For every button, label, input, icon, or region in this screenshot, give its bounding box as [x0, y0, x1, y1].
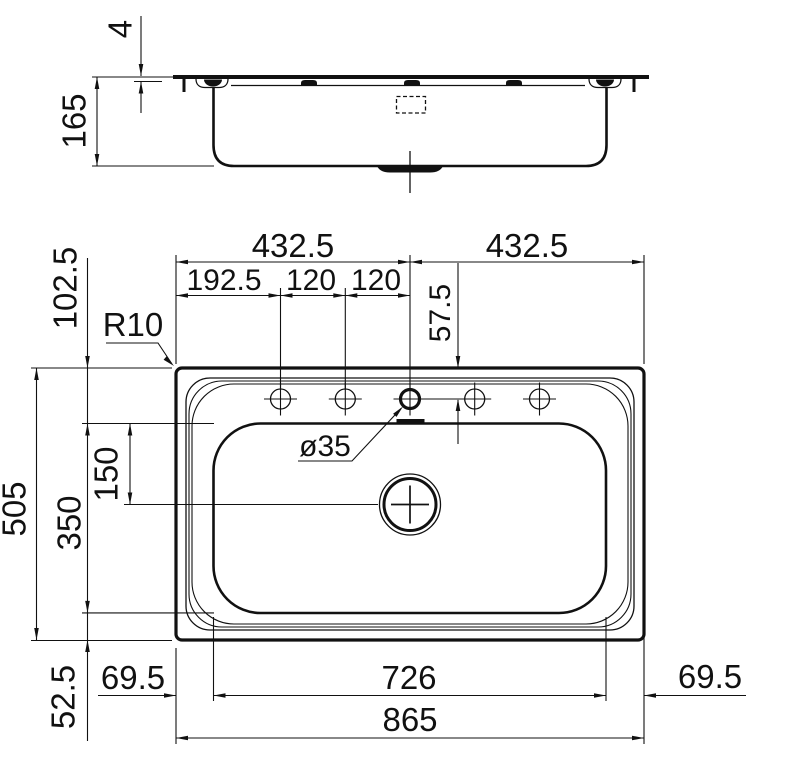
arrowhead	[128, 424, 133, 436]
clip-dot-left	[204, 80, 222, 87]
arrowhead	[164, 693, 176, 698]
side-view: 4 165	[56, 16, 649, 193]
dimension-depth: 165	[56, 77, 214, 166]
arrowhead	[176, 736, 188, 741]
arrowhead	[139, 64, 144, 76]
mount-bump	[404, 80, 420, 86]
dimension-overall-depth: 505	[0, 368, 39, 640]
arrowhead	[644, 693, 656, 698]
arrowhead	[139, 82, 144, 94]
mount-bump	[506, 80, 522, 86]
arrowhead	[85, 640, 90, 652]
dim-text-726: 726	[381, 659, 436, 696]
dim-text-150: 150	[88, 446, 125, 501]
dim-text-432-right: 432.5	[486, 227, 569, 264]
dim-text-4: 4	[102, 20, 139, 38]
dimension-margin-left: 69.5	[98, 659, 176, 698]
dim-text-505: 505	[0, 481, 33, 536]
arrowhead	[410, 260, 422, 265]
leader-line	[106, 343, 172, 364]
dim-text-192: 192.5	[186, 264, 261, 297]
arrowhead	[85, 601, 90, 613]
arrowhead	[164, 356, 174, 366]
dim-text-120b: 120	[351, 264, 401, 297]
dim-text-432-left: 432.5	[252, 227, 335, 264]
arrowhead	[95, 154, 100, 166]
drain	[380, 474, 441, 535]
label-text-r10: R10	[103, 306, 164, 343]
dim-text-120a: 120	[286, 264, 336, 297]
arrowhead	[34, 368, 39, 380]
dimension-drain-offset: 150	[88, 424, 133, 505]
arrowhead	[95, 77, 100, 89]
dim-text-57: 57.5	[424, 284, 457, 342]
dimension-top-halves: 432.5 432.5	[176, 227, 644, 389]
sink-drawing-canvas: 4 165	[0, 0, 800, 774]
overflow-hidden-outline	[397, 97, 426, 114]
arrowhead	[594, 693, 606, 698]
arrowhead	[456, 399, 461, 411]
dimension-hole-row-offset: 57.5	[419, 263, 464, 444]
arrowhead	[632, 260, 644, 265]
arrowhead	[85, 424, 90, 436]
dim-text-350: 350	[51, 495, 88, 550]
dim-text-69-right: 69.5	[678, 658, 742, 695]
mount-bump	[301, 80, 317, 86]
dim-text-165: 165	[56, 93, 93, 148]
label-hole-diameter: ø35	[298, 407, 403, 464]
label-text-o35: ø35	[299, 430, 351, 463]
clip-dot-right	[596, 80, 614, 87]
arrowhead	[269, 293, 281, 298]
overflow-slot	[397, 419, 425, 425]
arrowhead	[128, 493, 133, 505]
dim-text-865: 865	[382, 701, 437, 738]
label-corner-radius: R10	[103, 306, 174, 366]
dimension-left-chain: 102.5 350 52.5	[45, 247, 90, 741]
dim-text-102: 102.5	[47, 247, 84, 330]
dim-text-69-left: 69.5	[101, 659, 165, 696]
dimension-margin-right: 69.5	[644, 658, 746, 698]
dimension-rim-lip: 4	[102, 16, 144, 113]
dimension-hole-spacing: 192.5 120 120	[176, 264, 410, 389]
arrowhead	[456, 356, 461, 368]
arrowhead	[85, 356, 90, 368]
arrowhead	[632, 736, 644, 741]
arrowhead	[214, 693, 226, 698]
technical-drawing-page: 4 165	[0, 0, 800, 774]
dim-text-52: 52.5	[45, 665, 82, 729]
plan-view: 432.5 432.5 192.5 120 120 57.5	[0, 227, 746, 744]
arrowhead	[34, 628, 39, 640]
